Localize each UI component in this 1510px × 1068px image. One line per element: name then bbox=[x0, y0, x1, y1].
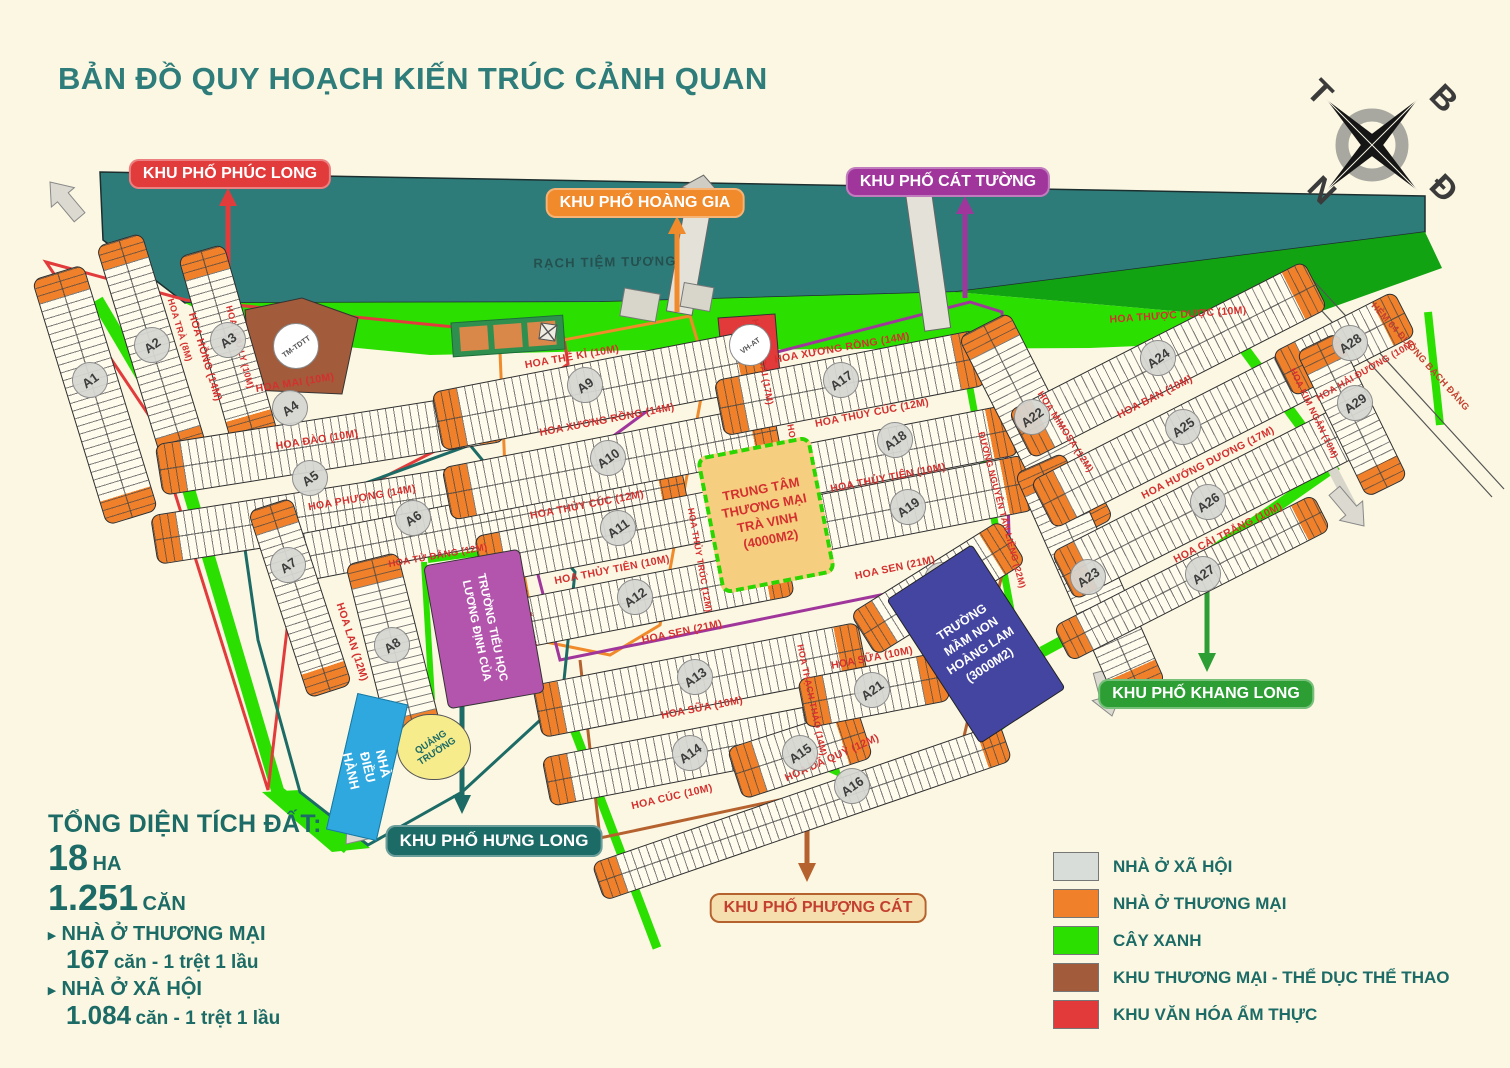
zone-badge-phuc-long: KHU PHỐ PHÚC LONG bbox=[129, 159, 331, 189]
planning-map-page: { "title": "BẢN ĐỒ QUY HOẠCH KIẾN TRÚC C… bbox=[0, 0, 1510, 1068]
stats-item-detail: căn - 1 trệt 1 lầu bbox=[114, 952, 259, 973]
stats-item-detail: căn - 1 trệt 1 lầu bbox=[136, 1008, 281, 1029]
stats-total: 1.251 CĂN bbox=[48, 878, 322, 918]
stats-item-commercial: ▸NHÀ Ở THƯƠNG MẠI bbox=[48, 923, 322, 945]
stats-total-unit: CĂN bbox=[143, 893, 186, 915]
admin-house-label: NHÀ ĐIỀU HÀNH bbox=[338, 737, 397, 797]
vh-at-label: VH-AT bbox=[738, 335, 761, 355]
tm-tdtt-circle: TM-TDTT bbox=[273, 323, 319, 369]
square-label: QUẢNG TRƯỜNG bbox=[406, 724, 462, 771]
bullet-icon: ▸ bbox=[48, 982, 56, 999]
green-strip-hungLong-road bbox=[563, 700, 657, 948]
legend-row: KHU THƯƠNG MẠI - THỂ DỤC THỂ THAO bbox=[1053, 963, 1449, 992]
stats-item-social: ▸NHÀ Ở XÃ HỘI bbox=[48, 978, 322, 1000]
legend-row: KHU VĂN HÓA ẨM THỰC bbox=[1053, 1000, 1449, 1029]
legend-swatch-greenery bbox=[1053, 926, 1099, 955]
zone-badge-phuong-cat: KHU PHỐ PHƯỢNG CÁT bbox=[710, 893, 927, 923]
compass-east-label: Đ bbox=[1423, 166, 1466, 209]
green-triangle-a16 bbox=[806, 752, 842, 778]
stats-heading: TỔNG DIỆN TÍCH ĐẤT: bbox=[48, 810, 322, 838]
square-blob: QUẢNG TRƯỜNG bbox=[397, 714, 471, 780]
arrow-khang-long bbox=[1198, 585, 1216, 672]
stats-item-value: 1.084 bbox=[66, 1000, 131, 1030]
vh-at-circle: VH-AT bbox=[729, 324, 771, 366]
green-edge-right bbox=[1042, 350, 1332, 652]
zone-badge-khang-long: KHU PHỐ KHANG LONG bbox=[1098, 679, 1314, 709]
bullet-icon: ▸ bbox=[48, 927, 56, 944]
stats-area: 18 HA bbox=[48, 838, 322, 878]
x-box-icon bbox=[539, 323, 557, 341]
legend-swatch-food-culture bbox=[1053, 1000, 1099, 1029]
legend: NHÀ Ở XÃ HỘI NHÀ Ở THƯƠNG MẠI CÂY XANH K… bbox=[1053, 852, 1449, 1037]
stats-area-unit: HA bbox=[93, 853, 122, 875]
stats-total-value: 1.251 bbox=[48, 877, 138, 918]
legend-label: CÂY XANH bbox=[1113, 931, 1201, 951]
legend-row: NHÀ Ở XÃ HỘI bbox=[1053, 852, 1449, 881]
legend-swatch-social-housing bbox=[1053, 852, 1099, 881]
stats-area-value: 18 bbox=[48, 837, 88, 878]
compass-north-label: B bbox=[1423, 76, 1466, 119]
legend-swatch-commercial-housing bbox=[1053, 889, 1099, 918]
stats-item-value: 167 bbox=[66, 944, 109, 974]
stats-item-social-value: 1.084 căn - 1 trệt 1 lầu bbox=[48, 1001, 322, 1030]
stats-item-label: NHÀ Ở XÃ HỘI bbox=[62, 978, 202, 1000]
legend-row: NHÀ Ở THƯƠNG MẠI bbox=[1053, 889, 1449, 918]
stats-panel: TỔNG DIỆN TÍCH ĐẤT: 18 HA 1.251 CĂN ▸NHÀ… bbox=[48, 810, 322, 1030]
legend-label: NHÀ Ở XÃ HỘI bbox=[1113, 857, 1232, 877]
legend-row: CÂY XANH bbox=[1053, 926, 1449, 955]
zone-badge-hoang-gia: KHU PHỐ HOÀNG GIA bbox=[546, 188, 745, 218]
arrow-phuong-cat bbox=[798, 820, 816, 882]
legend-label: KHU THƯƠNG MẠI - THỂ DỤC THỂ THAO bbox=[1113, 968, 1449, 988]
legend-label: NHÀ Ở THƯƠNG MẠI bbox=[1113, 894, 1286, 914]
zone-badge-hung-long: KHU PHỐ HƯNG LONG bbox=[386, 825, 603, 857]
road-exit-arrow-nw bbox=[39, 172, 92, 227]
legend-label: KHU VĂN HÓA ẨM THỰC bbox=[1113, 1005, 1317, 1025]
stats-item-label: NHÀ Ở THƯƠNG MẠI bbox=[62, 923, 266, 945]
stats-item-commercial-value: 167 căn - 1 trệt 1 lầu bbox=[48, 945, 322, 974]
boundary-hoang-gia bbox=[500, 316, 706, 655]
road-exit-arrow-se bbox=[1323, 481, 1376, 536]
legend-swatch-commerce-sport bbox=[1053, 963, 1099, 992]
zone-badge-cat-tuong: KHU PHỐ CÁT TƯỜNG bbox=[846, 167, 1050, 197]
tm-tdtt-label: TM-TDTT bbox=[280, 333, 312, 359]
